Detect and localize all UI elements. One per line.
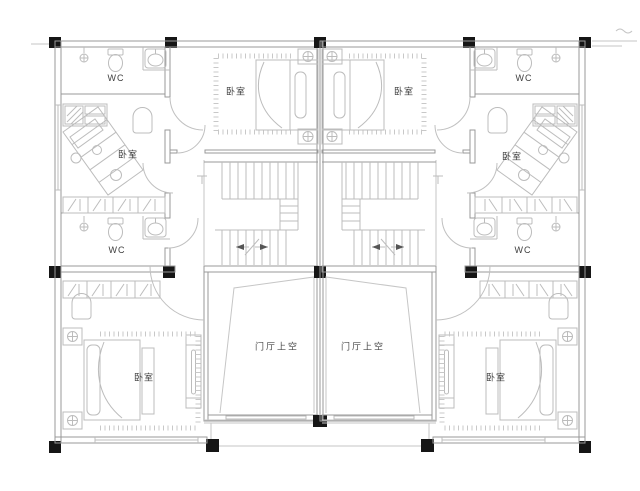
room-label-bedroom-top-right: 卧室 (394, 85, 414, 98)
room-label-bedroom-bottom-left: 卧室 (134, 371, 154, 384)
floor-plan-drawing (0, 0, 640, 491)
floor-plan-canvas: WC 卧室 WC 卧室 卧室 门厅上空 WC 卧室 WC 卧室 卧室 门厅上空 (0, 0, 640, 491)
room-label-entry-void-left: 门厅上空 (255, 340, 299, 353)
room-label-wc-bottom-right: WC (515, 245, 532, 255)
room-label-wc-bottom-left: WC (109, 245, 126, 255)
break-squiggle (616, 29, 632, 33)
room-label-bedroom-mid-right: 卧室 (502, 150, 522, 163)
unit-left (49, 37, 327, 453)
room-label-wc-top-right: WC (516, 73, 533, 83)
room-label-bedroom-bottom-right: 卧室 (486, 371, 506, 384)
room-label-wc-top-left: WC (108, 73, 125, 83)
unit-right (313, 37, 591, 453)
room-label-entry-void-right: 门厅上空 (341, 340, 385, 353)
room-label-bedroom-top-left: 卧室 (226, 85, 246, 98)
room-label-bedroom-mid-left: 卧室 (118, 148, 138, 161)
